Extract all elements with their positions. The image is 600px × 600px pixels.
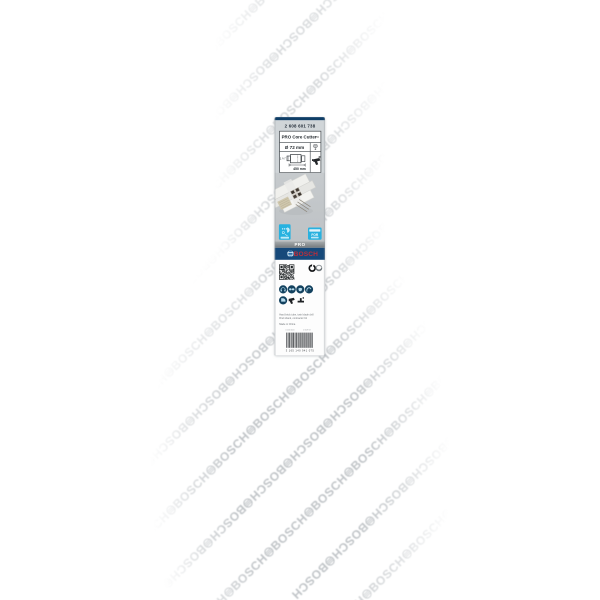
svg-text:2 608 601 738: 2 608 601 738 <box>285 123 316 128</box>
svg-text:BOSCH: BOSCH <box>294 251 318 258</box>
svg-text:3 165 140 941 075: 3 165 140 941 075 <box>286 348 315 352</box>
svg-text:PRO: PRO <box>294 242 305 247</box>
svg-text:Made in China: Made in China <box>279 323 296 326</box>
svg-text:Ø 72 mm: Ø 72 mm <box>285 145 304 150</box>
svg-text:1 ¼": 1 ¼" <box>280 157 286 161</box>
svg-text:1 609 92: 1 609 92 <box>303 330 312 332</box>
svg-text:Rnd shank, contractor bit: Rnd shank, contractor bit <box>279 317 307 320</box>
svg-text:HM: HM <box>315 136 319 139</box>
svg-text:450 mm: 450 mm <box>293 167 306 171</box>
svg-text:0 000 000: 0 000 000 <box>286 330 296 332</box>
svg-text:PRO Core Cutter: PRO Core Cutter <box>282 135 317 140</box>
svg-text:FOR: FOR <box>311 233 318 237</box>
